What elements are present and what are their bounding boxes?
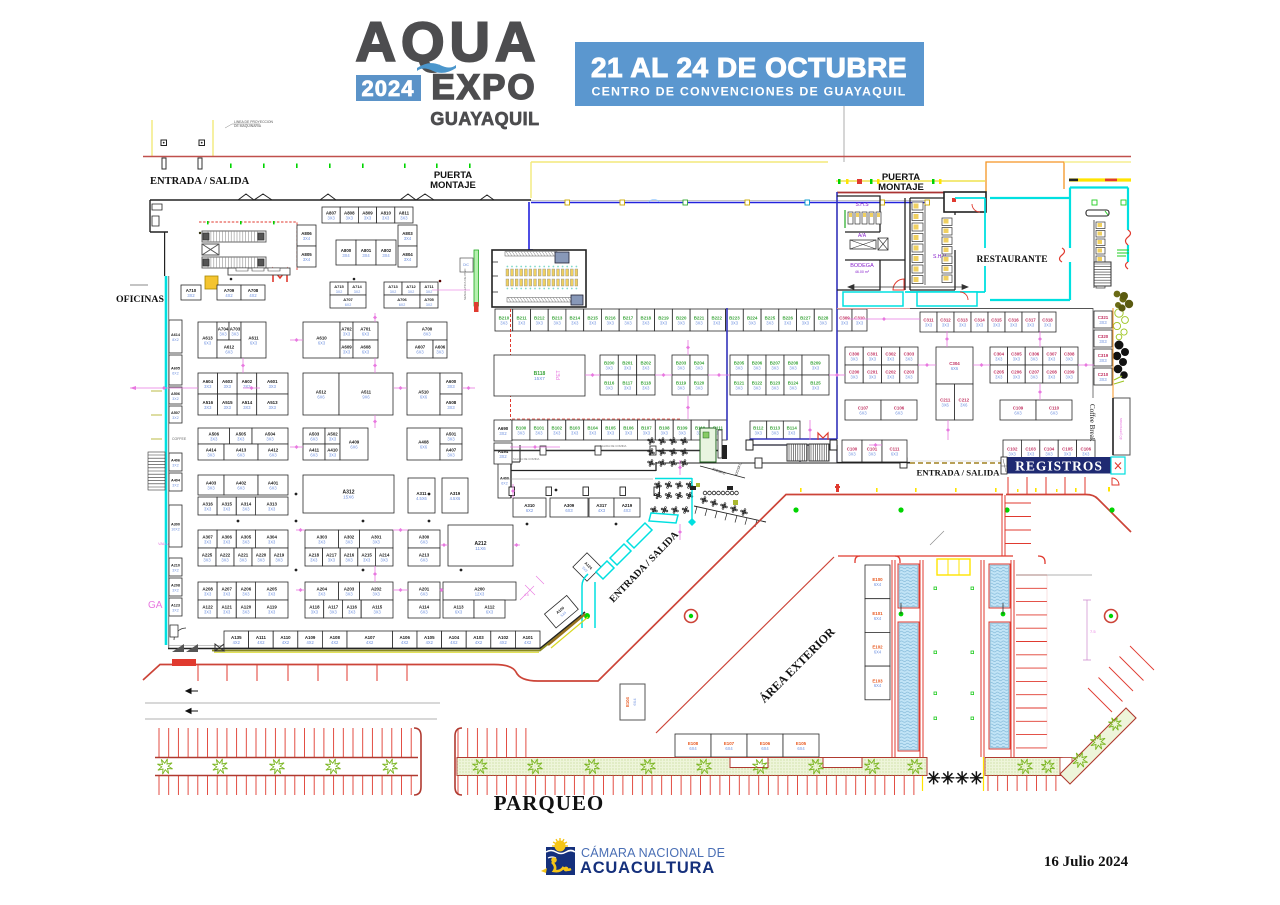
svg-text:MONTAJE: MONTAJE	[430, 180, 476, 191]
svg-text:4X2: 4X2	[233, 640, 241, 645]
svg-text:3X3: 3X3	[1082, 451, 1090, 456]
svg-text:3X3: 3X3	[553, 320, 561, 325]
svg-text:6X4: 6X4	[874, 650, 882, 655]
svg-text:A712: A712	[406, 284, 416, 289]
svg-text:3X4: 3X4	[303, 236, 311, 241]
svg-text:4X2: 4X2	[306, 640, 314, 645]
svg-text:3X3: 3X3	[607, 320, 615, 325]
svg-text:A706: A706	[397, 297, 407, 302]
svg-text:6X3: 6X3	[250, 340, 258, 345]
svg-text:3X2: 3X2	[172, 397, 178, 401]
svg-text:3X3: 3X3	[771, 365, 779, 370]
svg-text:✳✳✳✳: ✳✳✳✳	[927, 769, 984, 788]
svg-text:3X3: 3X3	[382, 215, 390, 220]
svg-text:6X3: 6X3	[455, 609, 463, 614]
svg-text:4X2: 4X2	[475, 640, 483, 645]
svg-text:3X3: 3X3	[789, 385, 797, 390]
svg-text:3X3: 3X3	[224, 405, 232, 410]
svg-text:3X4: 3X4	[382, 253, 390, 258]
svg-text:3X3: 3X3	[887, 374, 895, 379]
svg-text:3X3: 3X3	[784, 320, 792, 325]
svg-text:ENTRADA / SALIDA: ENTRADA / SALIDA	[916, 468, 1000, 478]
svg-text:4X3: 4X3	[598, 508, 606, 513]
svg-text:3X3: 3X3	[1013, 356, 1021, 361]
svg-text:6X6: 6X6	[350, 444, 358, 449]
svg-text:3X3: 3X3	[204, 405, 212, 410]
svg-text:8X3: 8X3	[423, 331, 431, 336]
svg-text:3X3: 3X3	[606, 385, 614, 390]
svg-text:6X6: 6X6	[951, 366, 959, 371]
svg-text:3X3: 3X3	[1013, 374, 1021, 379]
svg-text:3X2: 3X2	[172, 483, 178, 487]
svg-text:4X2: 4X2	[331, 640, 339, 645]
svg-text:3X3: 3X3	[589, 320, 597, 325]
svg-text:3X3: 3X3	[223, 591, 231, 596]
svg-text:40 personas: 40 personas	[1118, 418, 1123, 440]
svg-text:3X3: 3X3	[1099, 339, 1107, 344]
svg-text:3X3: 3X3	[771, 385, 779, 390]
svg-text:3X3: 3X3	[364, 215, 372, 220]
svg-text:A506: A506	[171, 392, 180, 396]
svg-text:GA: GA	[148, 600, 163, 611]
svg-text:4X2: 4X2	[401, 640, 409, 645]
svg-text:3X3: 3X3	[268, 539, 276, 544]
svg-text:COFFEE: COFFEE	[172, 437, 187, 441]
svg-text:6X4: 6X4	[874, 683, 882, 688]
svg-text:3X3: 3X3	[268, 609, 276, 614]
svg-text:8X2: 8X2	[172, 338, 178, 342]
svg-text:3X3: 3X3	[242, 539, 250, 544]
svg-text:6X4: 6X4	[761, 746, 769, 751]
svg-text:A400: A400	[500, 476, 509, 480]
svg-text:3X3: 3X3	[219, 331, 227, 336]
svg-text:6X3: 6X3	[420, 609, 428, 614]
svg-text:3X3: 3X3	[766, 320, 774, 325]
svg-text:3X3: 3X3	[589, 430, 597, 435]
svg-text:GUAYAQUIL: GUAYAQUIL	[430, 109, 539, 129]
svg-text:6X2: 6X2	[501, 481, 507, 485]
svg-text:3X3: 3X3	[869, 374, 877, 379]
svg-text:ACUACULTURA: ACUACULTURA	[580, 859, 715, 877]
svg-text:6X3: 6X3	[895, 410, 903, 415]
svg-text:3X3: 3X3	[789, 365, 797, 370]
svg-text:11X6: 11X6	[475, 546, 486, 551]
svg-text:A614: A614	[171, 333, 181, 337]
svg-text:2024: 2024	[362, 76, 415, 101]
svg-text:3X3: 3X3	[571, 430, 579, 435]
svg-text:3X3: 3X3	[735, 385, 743, 390]
svg-text:4X2: 4X2	[225, 293, 233, 298]
svg-text:6X3: 6X3	[891, 451, 899, 456]
svg-text:DE MAQUINARIA: DE MAQUINARIA	[234, 124, 262, 128]
svg-text:3X3: 3X3	[677, 385, 685, 390]
svg-text:46.00 m²: 46.00 m²	[855, 270, 870, 274]
svg-text:3X3: 3X3	[1066, 356, 1074, 361]
svg-text:3X2: 3X2	[172, 608, 178, 612]
svg-text:3X4: 3X4	[303, 257, 311, 262]
svg-text:ENTRADA / SALIDA: ENTRADA / SALIDA	[150, 176, 250, 187]
svg-text:3X3: 3X3	[243, 405, 251, 410]
svg-text:6X6: 6X6	[420, 444, 428, 449]
svg-text:6X3: 6X3	[416, 349, 424, 354]
svg-text:A406: A406	[171, 458, 180, 462]
svg-text:3X3: 3X3	[204, 539, 212, 544]
svg-text:3X3: 3X3	[1030, 356, 1038, 361]
svg-text:3X2: 3X2	[354, 290, 361, 294]
svg-text:3X3: 3X3	[373, 591, 381, 596]
svg-text:REGISTROS: REGISTROS	[1015, 459, 1103, 474]
svg-text:3X3: 3X3	[447, 384, 455, 389]
svg-text:6X4: 6X4	[632, 698, 637, 706]
svg-text:3X3: 3X3	[207, 485, 215, 490]
svg-text:MONTAJE: MONTAJE	[878, 182, 924, 193]
svg-text:3X3: 3X3	[535, 430, 543, 435]
svg-text:3X3: 3X3	[942, 322, 950, 327]
svg-text:3X3: 3X3	[925, 322, 933, 327]
svg-text:3X3: 3X3	[1099, 377, 1107, 382]
svg-text:3X3: 3X3	[642, 320, 650, 325]
svg-text:3X3: 3X3	[850, 374, 858, 379]
svg-text:AQUA: AQUA	[356, 10, 541, 73]
svg-text:A208: A208	[171, 583, 180, 587]
svg-text:3X2: 3X2	[172, 463, 178, 467]
svg-text:6X2: 6X2	[526, 508, 534, 513]
svg-text:6X3: 6X3	[362, 349, 370, 354]
svg-text:3X3: 3X3	[447, 405, 455, 410]
svg-text:6X3: 6X3	[1014, 410, 1022, 415]
svg-text:4X2: 4X2	[450, 640, 458, 645]
svg-text:6X3: 6X3	[1050, 410, 1058, 415]
svg-text:3X3: 3X3	[239, 557, 247, 562]
svg-text:6X2: 6X2	[345, 303, 352, 307]
svg-text:3X3: 3X3	[311, 609, 319, 614]
svg-text:3X3: 3X3	[224, 384, 232, 389]
svg-text:PET: PET	[556, 370, 562, 380]
svg-text:3X3: 3X3	[204, 609, 212, 614]
svg-text:3X2: 3X2	[426, 303, 433, 307]
svg-text:3X3: 3X3	[343, 331, 351, 336]
svg-text:3X3: 3X3	[237, 436, 245, 441]
svg-text:3X3: 3X3	[327, 215, 335, 220]
svg-text:3X2: 3X2	[172, 588, 178, 592]
svg-text:A714: A714	[352, 284, 362, 289]
svg-text:BODEGA: BODEGA	[850, 263, 874, 269]
svg-text:15X6: 15X6	[343, 494, 354, 499]
svg-text:3X3: 3X3	[231, 331, 239, 336]
svg-text:3X3: 3X3	[678, 320, 686, 325]
svg-text:3X3: 3X3	[812, 385, 820, 390]
svg-text:DIC: DIC	[463, 263, 469, 267]
svg-text:6X3: 6X3	[310, 452, 318, 457]
svg-text:4.5X6: 4.5X6	[416, 496, 427, 501]
svg-text:3X3: 3X3	[959, 322, 967, 327]
svg-text:3X3: 3X3	[257, 557, 265, 562]
svg-text:3X4: 3X4	[404, 236, 412, 241]
svg-text:3X3: 3X3	[268, 506, 276, 511]
svg-text:3X3: 3X3	[221, 557, 229, 562]
svg-text:3X3: 3X3	[642, 385, 650, 390]
svg-text:9X6: 9X6	[362, 394, 370, 399]
svg-text:3X3: 3X3	[310, 557, 318, 562]
svg-text:10X2: 10X2	[171, 527, 179, 531]
svg-text:3X3: 3X3	[328, 557, 336, 562]
svg-text:3X3: 3X3	[204, 506, 212, 511]
svg-text:A123: A123	[171, 603, 180, 607]
svg-text:3X3: 3X3	[995, 374, 1003, 379]
svg-text:3X3: 3X3	[976, 322, 984, 327]
svg-text:3X3: 3X3	[571, 320, 579, 325]
svg-text:SENALETICA DE PISO: SENALETICA DE PISO	[463, 268, 467, 300]
svg-text:3X3: 3X3	[695, 385, 703, 390]
svg-text:6X3: 6X3	[237, 452, 245, 457]
svg-text:3X3: 3X3	[1099, 358, 1107, 363]
svg-text:3X6: 3X6	[942, 402, 950, 407]
svg-text:3X3: 3X3	[624, 365, 632, 370]
svg-text:3X3: 3X3	[642, 365, 650, 370]
svg-text:3X3: 3X3	[1044, 322, 1052, 327]
svg-text:3X3: 3X3	[1010, 322, 1018, 327]
svg-text:3X3: 3X3	[753, 365, 761, 370]
svg-text:A713: A713	[388, 284, 398, 289]
svg-text:3X3: 3X3	[643, 430, 651, 435]
svg-text:3X3: 3X3	[447, 452, 455, 457]
svg-text:6X2: 6X2	[399, 303, 406, 307]
svg-text:Coffee Break: Coffee Break	[1088, 404, 1096, 442]
svg-text:3X2: 3X2	[499, 431, 507, 436]
svg-text:OFICINAS: OFICINAS	[116, 294, 164, 305]
svg-text:3X3: 3X3	[242, 506, 250, 511]
svg-text:3X3: 3X3	[679, 430, 687, 435]
svg-text:A210: A210	[171, 563, 180, 567]
svg-text:3X3: 3X3	[329, 609, 337, 614]
svg-text:3X3: 3X3	[1045, 451, 1053, 456]
svg-text:3X4: 3X4	[362, 253, 370, 258]
svg-text:A705: A705	[424, 297, 434, 302]
svg-text:3X3: 3X3	[204, 591, 212, 596]
svg-text:3X3: 3X3	[329, 452, 337, 457]
svg-text:3X6: 3X6	[960, 402, 968, 407]
svg-text:PARQUEO: PARQUEO	[494, 791, 604, 815]
svg-text:3X2: 3X2	[172, 416, 178, 420]
svg-text:3X3: 3X3	[856, 320, 864, 325]
svg-text:SALIDA DE COMIDA: SALIDA DE COMIDA	[600, 444, 627, 448]
svg-text:3X3: 3X3	[1064, 451, 1072, 456]
svg-text:6X3: 6X3	[420, 557, 428, 562]
svg-text:4X2: 4X2	[426, 640, 434, 645]
svg-text:A300: A300	[171, 522, 180, 526]
svg-text:A707: A707	[343, 297, 353, 302]
svg-text:3X3: 3X3	[343, 349, 351, 354]
svg-text:3X3: 3X3	[625, 430, 633, 435]
svg-text:3X3: 3X3	[661, 430, 669, 435]
svg-text:3X3: 3X3	[400, 215, 408, 220]
svg-text:3X3: 3X3	[203, 557, 211, 562]
svg-text:6X2: 6X2	[172, 371, 178, 375]
svg-text:3X3: 3X3	[207, 452, 215, 457]
svg-text:3X3: 3X3	[373, 539, 381, 544]
svg-text:6X3: 6X3	[565, 508, 573, 513]
svg-text:4X2: 4X2	[282, 640, 290, 645]
svg-text:3X3: 3X3	[1048, 356, 1056, 361]
svg-text:3X3: 3X3	[869, 356, 877, 361]
svg-text:4X3: 4X3	[623, 508, 631, 513]
svg-text:3X3: 3X3	[1027, 322, 1035, 327]
svg-text:3X3: 3X3	[624, 320, 632, 325]
svg-text:3X2: 3X2	[172, 568, 178, 572]
svg-text:3X3: 3X3	[345, 539, 353, 544]
svg-text:3X3: 3X3	[624, 385, 632, 390]
svg-text:3X3: 3X3	[753, 385, 761, 390]
svg-text:3X3: 3X3	[204, 384, 212, 389]
svg-text:3X3: 3X3	[318, 539, 326, 544]
svg-text:3X3: 3X3	[553, 430, 561, 435]
svg-text:3X3: 3X3	[266, 436, 274, 441]
svg-text:12X3: 12X3	[475, 591, 485, 596]
svg-text:3X3: 3X3	[868, 451, 876, 456]
svg-text:3X2: 3X2	[187, 293, 195, 298]
svg-text:3X4: 3X4	[404, 257, 412, 262]
svg-text:3X3: 3X3	[1027, 451, 1035, 456]
svg-text:7.5: 7.5	[1090, 629, 1096, 634]
svg-text:A715: A715	[334, 284, 344, 289]
svg-text:E104: E104	[625, 696, 630, 706]
svg-text:6X3: 6X3	[420, 539, 428, 544]
svg-text:3X3: 3X3	[713, 320, 721, 325]
svg-text:6X3: 6X3	[420, 591, 428, 596]
svg-text:3X3: 3X3	[363, 557, 371, 562]
svg-text:3X3: 3X3	[223, 539, 231, 544]
svg-text:6X3: 6X3	[310, 436, 318, 441]
svg-text:6X3: 6X3	[269, 485, 277, 490]
svg-text:4X2: 4X2	[524, 640, 532, 645]
svg-text:A711: A711	[424, 284, 434, 289]
svg-text:4.5X6: 4.5X6	[450, 496, 461, 501]
svg-text:3X3: 3X3	[819, 320, 827, 325]
svg-text:6X4: 6X4	[874, 616, 882, 621]
svg-text:6X3: 6X3	[225, 349, 233, 354]
svg-text:4X2: 4X2	[366, 640, 374, 645]
svg-text:3X3: 3X3	[905, 356, 913, 361]
svg-text:3X3: 3X3	[735, 365, 743, 370]
svg-text:3X3: 3X3	[447, 436, 455, 441]
svg-text:3X3: 3X3	[373, 609, 381, 614]
svg-text:3X3: 3X3	[607, 430, 615, 435]
svg-text:3X3: 3X3	[329, 436, 337, 441]
svg-text:3X3: 3X3	[695, 320, 703, 325]
svg-text:3X4: 3X4	[342, 253, 350, 258]
svg-text:4X2: 4X2	[257, 640, 265, 645]
svg-text:3X3: 3X3	[269, 405, 277, 410]
svg-text:A507: A507	[171, 411, 180, 415]
svg-text:3X3: 3X3	[1048, 374, 1056, 379]
svg-text:3X3: 3X3	[802, 320, 810, 325]
svg-text:3X3: 3X3	[887, 356, 895, 361]
svg-text:3X3: 3X3	[788, 430, 796, 435]
svg-text:3X3: 3X3	[223, 506, 231, 511]
svg-text:3X3: 3X3	[905, 374, 913, 379]
svg-text:CENTRO DE CONVENCIONES DE GUAY: CENTRO DE CONVENCIONES DE GUAYAQUIL	[591, 85, 906, 99]
svg-text:6X6: 6X6	[420, 394, 428, 399]
svg-text:3X3: 3X3	[771, 430, 779, 435]
svg-text:CÁMARA NACIONAL DE: CÁMARA NACIONAL DE	[581, 845, 725, 860]
svg-text:6X3: 6X3	[318, 340, 326, 345]
svg-text:21 AL 24 DE OCTUBRE: 21 AL 24 DE OCTUBRE	[591, 52, 907, 83]
svg-text:3X3: 3X3	[500, 320, 508, 325]
svg-text:3X3: 3X3	[346, 215, 354, 220]
svg-text:S.H.S: S.H.S	[855, 202, 869, 208]
svg-text:3X3: 3X3	[812, 365, 820, 370]
svg-text:3X3: 3X3	[518, 320, 526, 325]
svg-text:6X3: 6X3	[859, 410, 867, 415]
svg-text:6X4: 6X4	[689, 746, 697, 751]
svg-text:3X3: 3X3	[749, 320, 757, 325]
svg-text:3X3: 3X3	[606, 365, 614, 370]
svg-text:3X3: 3X3	[242, 609, 250, 614]
svg-text:3X3: 3X3	[436, 349, 444, 354]
svg-text:3X2: 3X2	[499, 454, 507, 459]
svg-text:3X3: 3X3	[242, 591, 250, 596]
svg-text:6X3: 6X3	[237, 485, 245, 490]
svg-text:3X3: 3X3	[345, 557, 353, 562]
svg-text:3X3: 3X3	[275, 557, 283, 562]
svg-text:3X3: 3X3	[660, 320, 668, 325]
svg-text:6X4: 6X4	[725, 746, 733, 751]
svg-text:3X3: 3X3	[210, 436, 218, 441]
svg-text:3X3: 3X3	[268, 591, 276, 596]
svg-text:3X2: 3X2	[336, 290, 343, 294]
svg-text:4X2: 4X2	[499, 640, 507, 645]
svg-text:RESTAURANTE: RESTAURANTE	[976, 255, 1047, 265]
svg-text:6X3: 6X3	[204, 340, 212, 345]
svg-text:16 Julio 2024: 16 Julio 2024	[1044, 854, 1129, 870]
svg-text:3X3: 3X3	[755, 430, 763, 435]
svg-text:3X3: 3X3	[677, 365, 685, 370]
svg-text:3X3: 3X3	[1066, 374, 1074, 379]
svg-text:4.5: 4.5	[524, 593, 529, 597]
svg-text:3X2: 3X2	[408, 290, 415, 294]
svg-text:3X3: 3X3	[1009, 451, 1017, 456]
svg-text:6X6: 6X6	[317, 394, 325, 399]
svg-text:6X3: 6X3	[269, 452, 277, 457]
svg-text:3X3: 3X3	[731, 320, 739, 325]
svg-text:6X4: 6X4	[797, 746, 805, 751]
svg-text:3X2: 3X2	[390, 290, 397, 294]
svg-text:3X3: 3X3	[993, 322, 1001, 327]
svg-text:3X3: 3X3	[1030, 374, 1038, 379]
svg-text:3X2: 3X2	[426, 290, 433, 294]
svg-text:3X3: 3X3	[536, 320, 544, 325]
svg-text:3X3: 3X3	[695, 365, 703, 370]
svg-text:3X3: 3X3	[848, 451, 856, 456]
svg-text:15X7: 15X7	[534, 376, 545, 381]
svg-text:3X3: 3X3	[517, 430, 525, 435]
svg-text:3X3: 3X3	[318, 591, 326, 596]
svg-text:3X3: 3X3	[345, 591, 353, 596]
svg-text:3X3: 3X3	[995, 356, 1003, 361]
svg-text:A404: A404	[171, 478, 181, 482]
svg-text:3X3: 3X3	[850, 356, 858, 361]
svg-text:6X4: 6X4	[874, 582, 882, 587]
svg-text:3X3: 3X3	[381, 557, 389, 562]
svg-text:6X3: 6X3	[486, 609, 494, 614]
svg-text:3X3: 3X3	[223, 609, 231, 614]
svg-text:SALIDA DE COMIDA: SALIDA DE COMIDA	[513, 457, 540, 461]
svg-text:6X3: 6X3	[362, 331, 370, 336]
svg-text:4X2: 4X2	[249, 293, 257, 298]
svg-text:3X3: 3X3	[269, 384, 277, 389]
svg-text:3X3: 3X3	[348, 609, 356, 614]
svg-text:EXPO: EXPO	[431, 68, 536, 107]
